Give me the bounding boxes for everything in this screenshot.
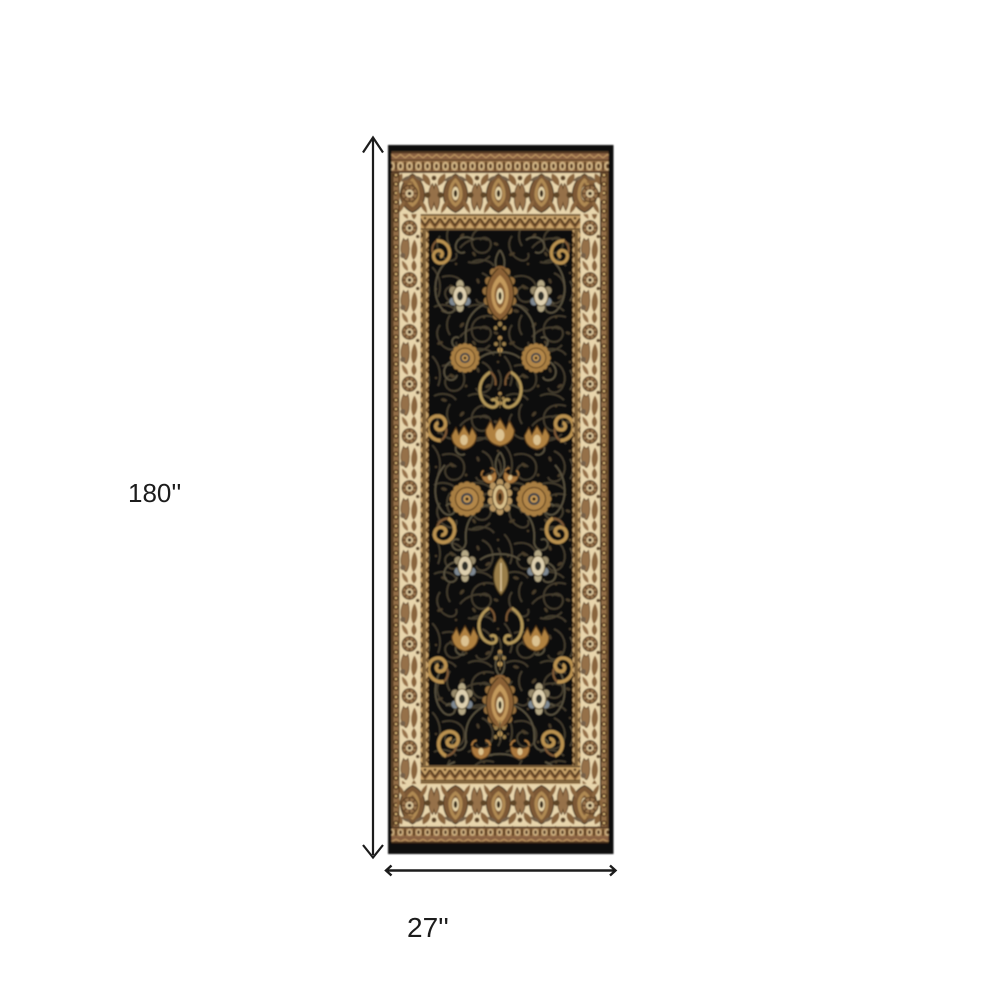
svg-text:180'': 180'' [128, 478, 181, 508]
svg-text:27'': 27'' [407, 912, 449, 943]
